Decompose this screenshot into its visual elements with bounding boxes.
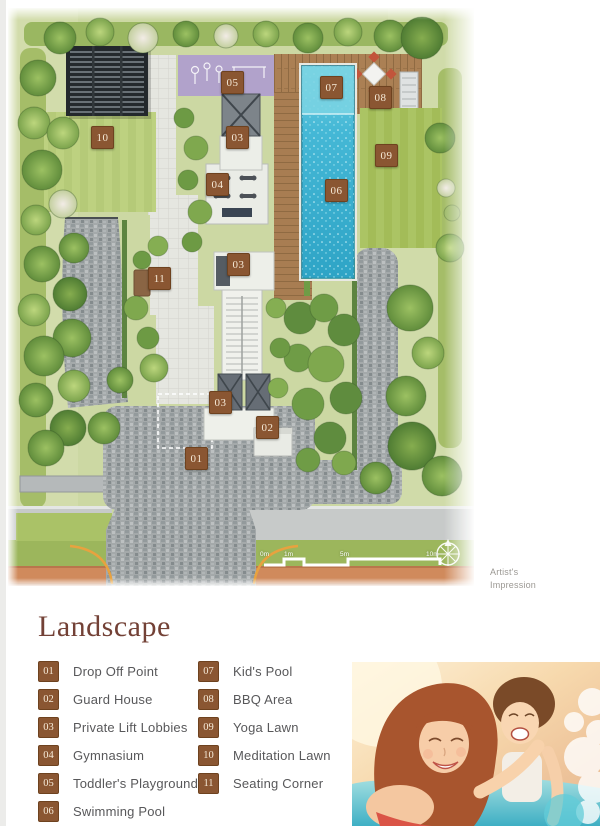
map-marker-05: 05 bbox=[221, 71, 244, 94]
legend-label-02: Guard House bbox=[73, 692, 153, 707]
legend-num-02: 02 bbox=[38, 689, 59, 710]
map-marker-04: 04 bbox=[206, 173, 229, 196]
site-plan: 05 07 08 03 10 09 04 06 03 11 03 02 01 0… bbox=[8, 8, 474, 586]
legend-label-04: Gymnasium bbox=[73, 748, 144, 763]
legend-label-08: BBQ Area bbox=[233, 692, 292, 707]
legend-label-07: Kid's Pool bbox=[233, 664, 292, 679]
legend-item-seating-corner: 11 Seating Corner bbox=[198, 772, 331, 794]
scale-label-10m: 10m bbox=[426, 552, 439, 559]
legend-item-private-lift-lobbies: 03 Private Lift Lobbies bbox=[38, 716, 198, 738]
legend-label-11: Seating Corner bbox=[233, 776, 323, 791]
map-marker-10: 10 bbox=[91, 126, 114, 149]
legend-num-09: 09 bbox=[198, 717, 219, 738]
pool-photo bbox=[352, 662, 600, 826]
page-title: Landscape bbox=[38, 610, 171, 644]
map-marker-08: 08 bbox=[369, 86, 392, 109]
map-marker-02: 02 bbox=[256, 416, 279, 439]
legend-num-05: 05 bbox=[38, 773, 59, 794]
map-marker-09: 09 bbox=[375, 144, 398, 167]
page-left-edge bbox=[0, 0, 6, 826]
legend-label-05: Toddler's Playground bbox=[73, 776, 198, 791]
legend-num-11: 11 bbox=[198, 773, 219, 794]
legend-item-guard-house: 02 Guard House bbox=[38, 688, 198, 710]
scale-label-1m: 1m bbox=[284, 552, 293, 559]
scale-label-0m: 0m bbox=[260, 552, 269, 559]
artists-impression-caption: Artist's Impression bbox=[490, 566, 550, 592]
map-marker-03-lower: 03 bbox=[209, 391, 232, 414]
map-marker-07: 07 bbox=[320, 76, 343, 99]
legend-num-03: 03 bbox=[38, 717, 59, 738]
legend-column-1: 01 Drop Off Point 02 Guard House 03 Priv… bbox=[38, 660, 198, 822]
scale-label-5m: 5m bbox=[340, 552, 349, 559]
legend-num-06: 06 bbox=[38, 801, 59, 822]
legend: 01 Drop Off Point 02 Guard House 03 Priv… bbox=[38, 660, 331, 822]
legend-num-10: 10 bbox=[198, 745, 219, 766]
legend-label-10: Meditation Lawn bbox=[233, 748, 331, 763]
legend-item-drop-off-point: 01 Drop Off Point bbox=[38, 660, 198, 682]
trellis-pergola bbox=[66, 46, 151, 119]
legend-label-06: Swimming Pool bbox=[73, 804, 165, 819]
map-marker-01: 01 bbox=[185, 447, 208, 470]
legend-item-kids-pool: 07 Kid's Pool bbox=[198, 660, 331, 682]
legend-item-yoga-lawn: 09 Yoga Lawn bbox=[198, 716, 331, 738]
site-plan-illustration bbox=[8, 8, 474, 586]
legend-item-bbq-area: 08 BBQ Area bbox=[198, 688, 331, 710]
legend-item-meditation-lawn: 10 Meditation Lawn bbox=[198, 744, 331, 766]
map-marker-11: 11 bbox=[148, 267, 171, 290]
map-marker-03-mid: 03 bbox=[227, 253, 250, 276]
legend-num-07: 07 bbox=[198, 661, 219, 682]
legend-label-03: Private Lift Lobbies bbox=[73, 720, 188, 735]
map-marker-03-upper: 03 bbox=[226, 126, 249, 149]
legend-item-toddlers-playground: 05 Toddler's Playground bbox=[38, 772, 198, 794]
legend-item-swimming-pool: 06 Swimming Pool bbox=[38, 800, 198, 822]
legend-column-2: 07 Kid's Pool 08 BBQ Area 09 Yoga Lawn 1… bbox=[198, 660, 331, 822]
legend-label-09: Yoga Lawn bbox=[233, 720, 299, 735]
legend-num-08: 08 bbox=[198, 689, 219, 710]
map-marker-06: 06 bbox=[325, 179, 348, 202]
legend-num-04: 04 bbox=[38, 745, 59, 766]
pool-photo-illustration bbox=[352, 662, 600, 826]
legend-item-gymnasium: 04 Gymnasium bbox=[38, 744, 198, 766]
legend-label-01: Drop Off Point bbox=[73, 664, 158, 679]
legend-num-01: 01 bbox=[38, 661, 59, 682]
